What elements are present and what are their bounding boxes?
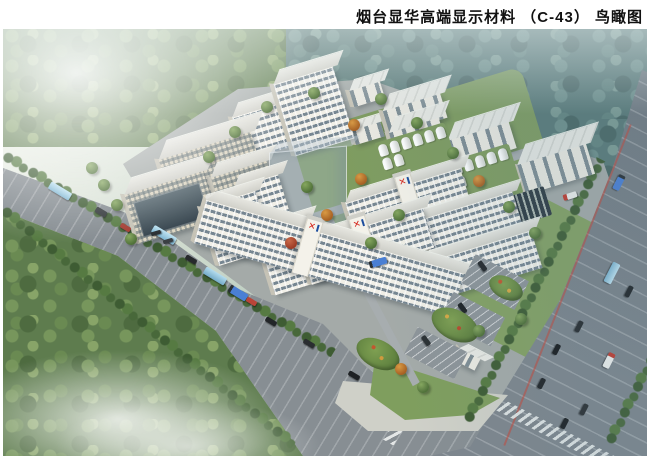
company-logo: ✕ (398, 177, 411, 189)
storage-tank (377, 143, 389, 157)
storage-tank (423, 129, 435, 143)
storage-tank (393, 153, 405, 167)
storage-tank (474, 154, 486, 168)
tree-autumn (395, 363, 407, 375)
shrub-red (456, 325, 461, 330)
aerial-rendering: ✕ ✕ ✕ (3, 29, 647, 456)
storage-tank (435, 126, 447, 140)
company-logo: ✕ (307, 222, 320, 234)
shrub-red (498, 279, 503, 284)
storage-tank (400, 136, 412, 150)
tree (473, 325, 485, 337)
storage-tank (381, 156, 393, 170)
shrub-yellow (379, 355, 384, 360)
tree (393, 209, 405, 221)
tree (365, 237, 377, 249)
shrub-yellow (444, 314, 449, 319)
tree (503, 201, 515, 213)
tree-red (285, 237, 297, 249)
storage-tank (389, 140, 401, 154)
tree (375, 93, 387, 105)
tree (447, 147, 459, 159)
tree-autumn (473, 175, 485, 187)
tree (417, 381, 429, 393)
storage-tank (497, 147, 509, 161)
tree (411, 117, 423, 129)
vehicle-car (477, 260, 488, 272)
vehicle-car (421, 335, 432, 347)
stair-tower: ✕ (291, 215, 324, 277)
shrub-yellow (506, 288, 511, 293)
tree-autumn (348, 119, 360, 131)
tree (529, 227, 541, 239)
tree-autumn (355, 173, 367, 185)
shrub-red (371, 345, 376, 350)
tree (515, 313, 527, 325)
storage-tank (412, 133, 424, 147)
tree-autumn (321, 209, 333, 221)
page-title: 烟台显华高端显示材料 （C-43） 鸟瞰图 (356, 6, 643, 27)
storage-tank (485, 151, 497, 165)
